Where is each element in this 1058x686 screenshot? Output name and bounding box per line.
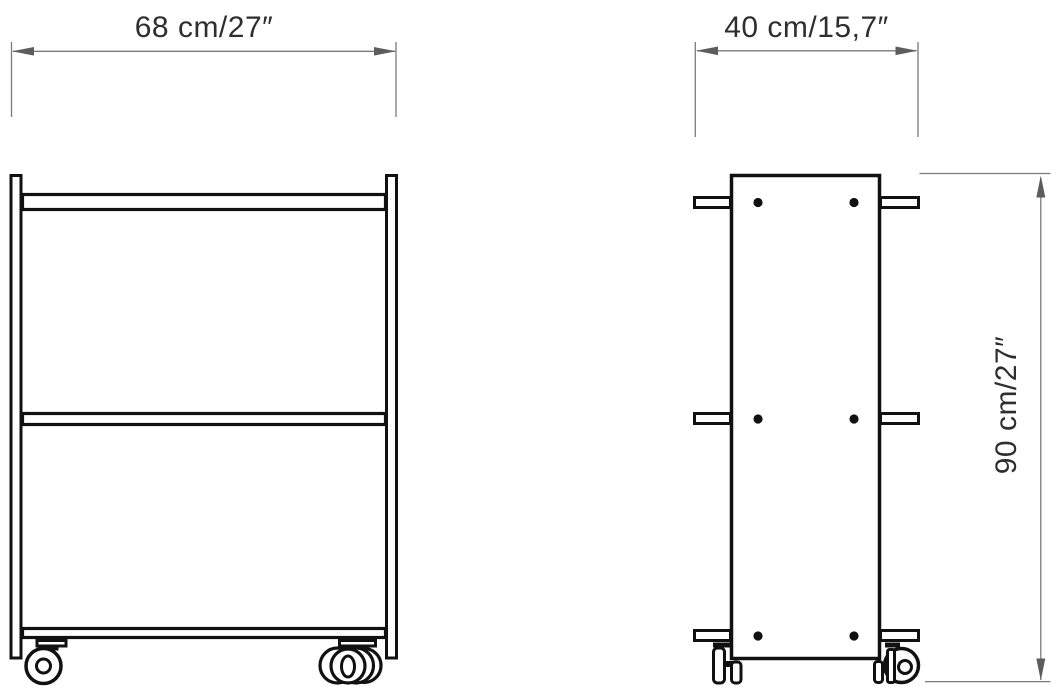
caster-plate <box>37 641 66 647</box>
dimension-front-width: 68 cm/27″ <box>12 11 397 117</box>
tab-middle-left <box>695 414 731 424</box>
tab-top-right <box>881 198 919 208</box>
tab-top-left <box>695 198 731 208</box>
trolley-side-view <box>695 176 919 684</box>
caster-hub <box>342 656 355 677</box>
arrowhead-left <box>12 47 34 56</box>
arrowhead-right <box>896 47 918 56</box>
caster-wheel-bar <box>732 662 742 683</box>
front-left-leg <box>11 176 21 659</box>
screw-dot <box>753 631 762 640</box>
caster-fork-bar <box>714 648 725 683</box>
front-left-caster <box>26 641 66 684</box>
tab-bottom-right <box>881 631 919 641</box>
front-top-shelf <box>23 195 386 210</box>
screw-dot <box>753 414 762 423</box>
caster-fork-front <box>888 650 895 683</box>
trolley-front-view <box>11 176 397 684</box>
front-middle-shelf <box>23 414 386 425</box>
screw-dot <box>849 414 858 423</box>
side-depth-label: 40 cm/15,7″ <box>724 11 889 44</box>
caster-hub <box>37 659 51 673</box>
front-bottom-shelf <box>23 629 386 638</box>
screw-dot <box>849 631 858 640</box>
front-right-leg <box>387 176 397 659</box>
screw-dot <box>849 198 858 207</box>
drawing-svg: 68 cm/27″ 40 cm/15,7″ 90 cm/27″ <box>0 0 1058 686</box>
dimension-height: 90 cm/27″ <box>920 174 1051 682</box>
tab-middle-right <box>881 414 919 424</box>
screw-dot <box>753 198 762 207</box>
height-label: 90 cm/27″ <box>990 336 1023 475</box>
arrowhead-right <box>374 47 396 56</box>
arrowhead-down <box>1036 659 1045 681</box>
dimension-side-depth: 40 cm/15,7″ <box>695 11 918 137</box>
caster-hub <box>899 661 912 674</box>
trolley-dimension-drawing: 68 cm/27″ 40 cm/15,7″ 90 cm/27″ <box>0 0 1058 686</box>
front-width-label: 68 cm/27″ <box>135 11 274 44</box>
caster-plate <box>340 641 376 647</box>
arrowhead-left <box>696 47 718 56</box>
arrowhead-up <box>1036 176 1045 198</box>
caster-mount <box>885 643 900 648</box>
front-right-caster <box>320 641 381 684</box>
tab-bottom-left <box>695 631 731 641</box>
caster-back-bar <box>875 662 883 683</box>
